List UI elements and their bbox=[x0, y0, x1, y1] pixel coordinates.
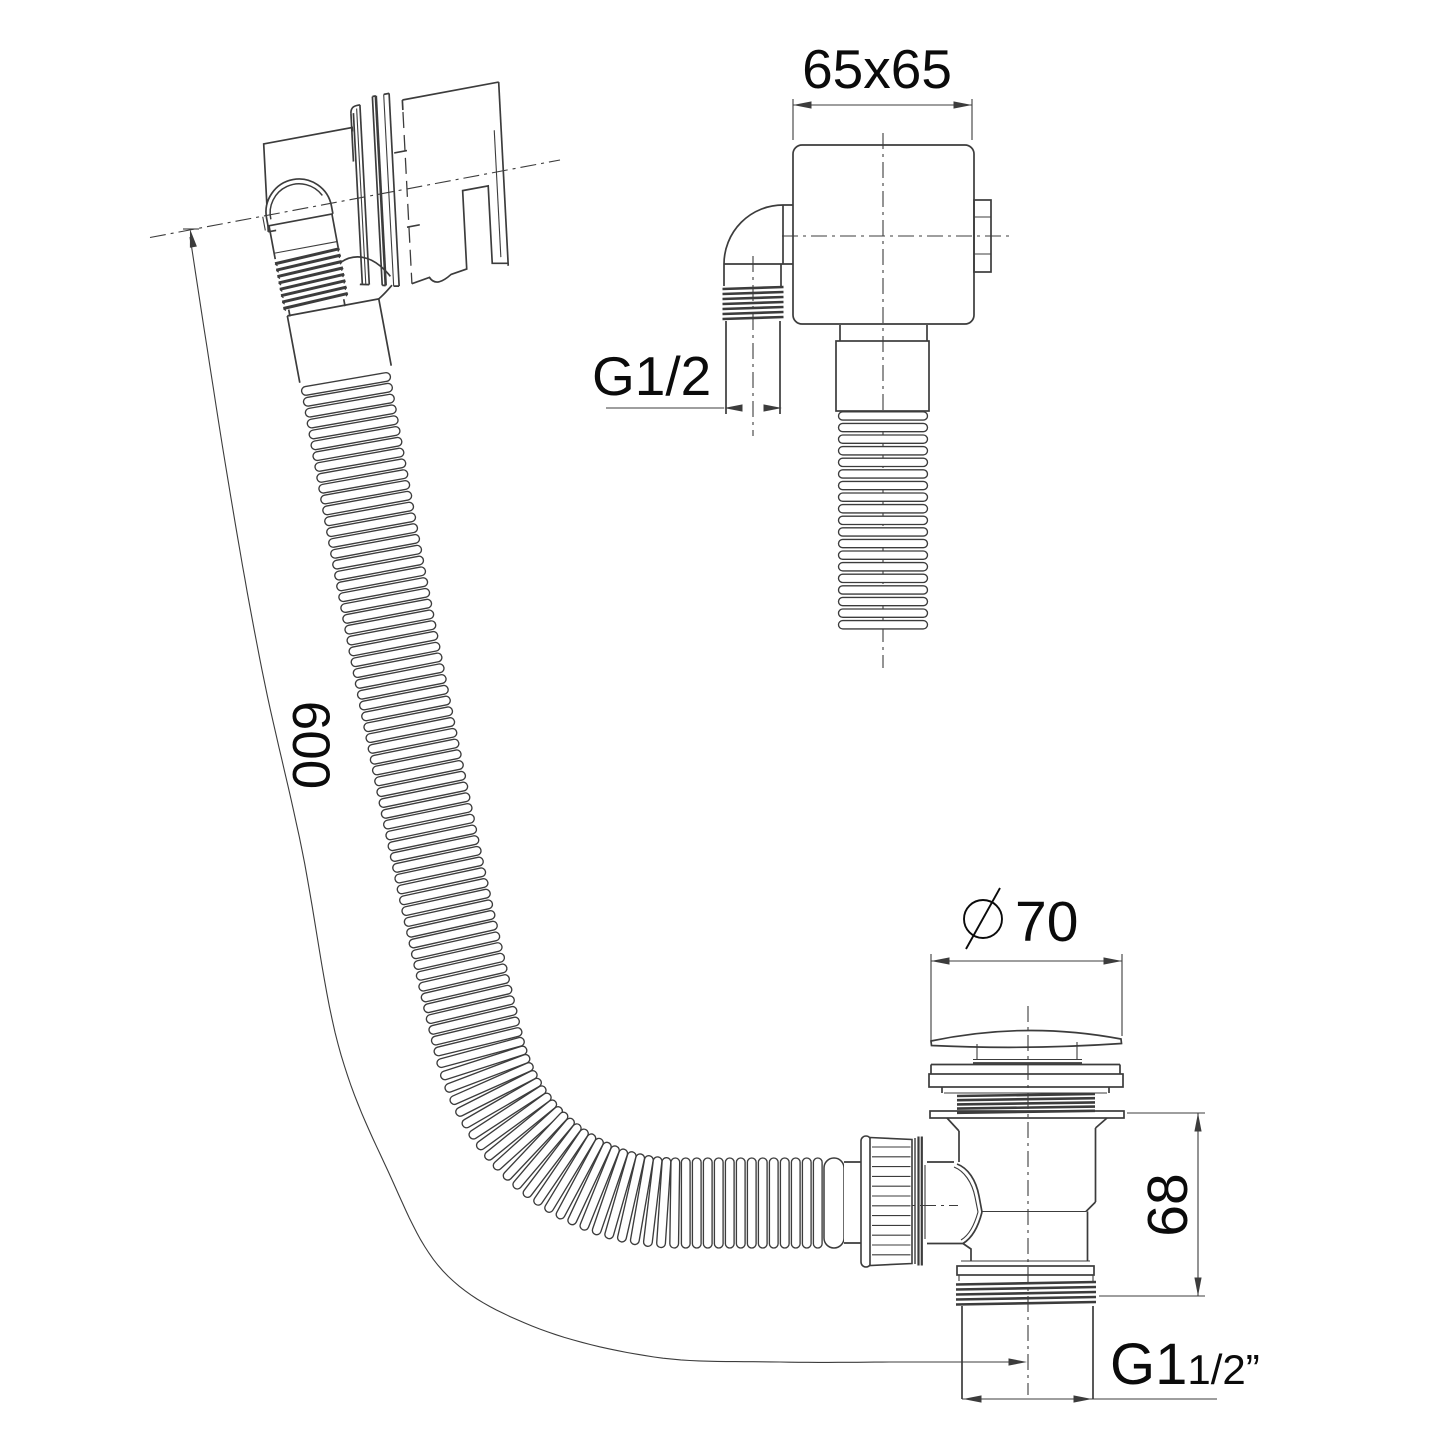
svg-text:68: 68 bbox=[1136, 1173, 1200, 1236]
svg-text:600: 600 bbox=[281, 701, 340, 789]
svg-text:G1/2: G1/2 bbox=[592, 345, 711, 407]
svg-text:70: 70 bbox=[1015, 890, 1078, 954]
svg-text:65x65: 65x65 bbox=[802, 38, 952, 100]
